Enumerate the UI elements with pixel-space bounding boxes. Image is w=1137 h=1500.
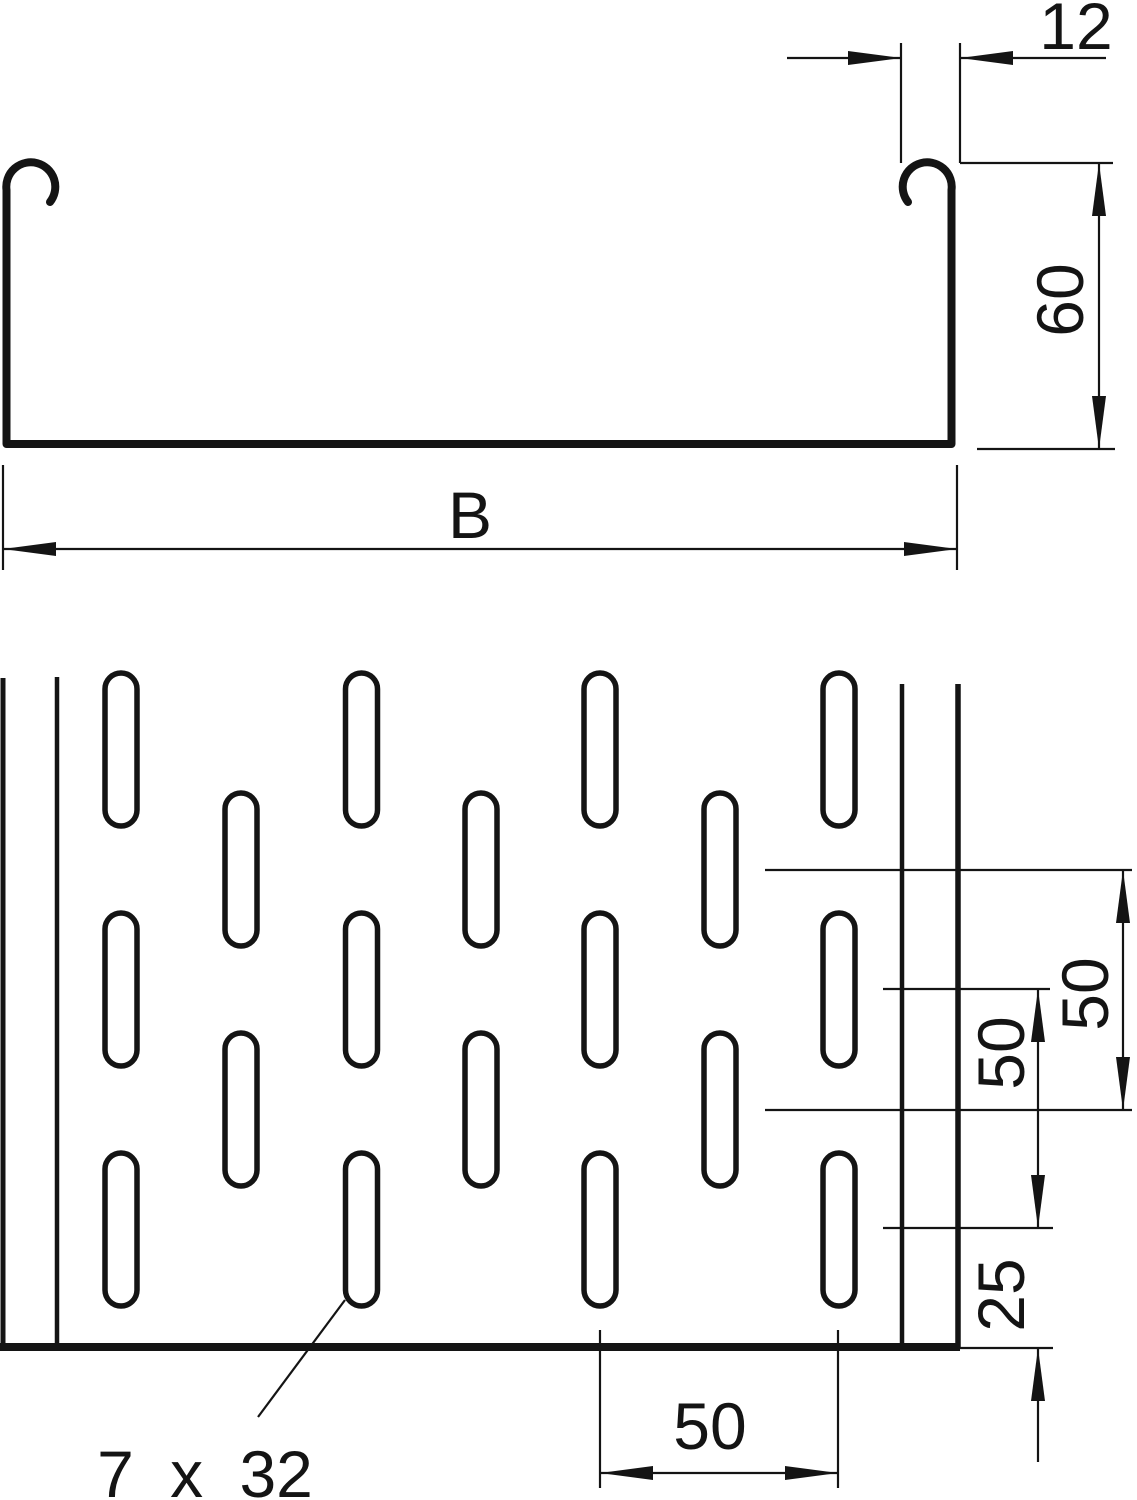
technical-drawing-canvas: 12 60 B — [0, 0, 1137, 1500]
arrowhead-right — [785, 1466, 838, 1480]
arrowhead-right — [904, 542, 957, 556]
slot — [105, 673, 137, 826]
dimension-label-60: 60 — [1023, 263, 1097, 336]
dimension-label-50-outer: 50 — [1048, 957, 1122, 1030]
dimension-50-bottom: 50 — [600, 1330, 838, 1488]
cross-section-view: 12 60 B — [3, 0, 1115, 570]
dimension-label-B: B — [448, 478, 492, 552]
arrowhead-up — [1031, 1348, 1045, 1401]
slot — [105, 1153, 137, 1306]
slot — [225, 793, 257, 946]
dimension-25: 25 — [960, 1258, 1053, 1462]
leader-line — [258, 1300, 345, 1417]
dimension-label-50-bottom: 50 — [673, 1389, 746, 1463]
slot — [225, 1033, 257, 1186]
tray-profile-outline — [6, 162, 951, 444]
slot — [823, 673, 855, 826]
arrowhead-left — [3, 542, 56, 556]
slot-size-label: 7 x 32 — [97, 1437, 313, 1500]
slot — [346, 1153, 378, 1306]
slot — [105, 913, 137, 1066]
slot-holes-offset-columns — [225, 793, 736, 1186]
arrowhead-up — [1092, 163, 1106, 216]
slot — [584, 673, 616, 826]
dimension-label-50-inner: 50 — [964, 1016, 1038, 1089]
dimension-label-12: 12 — [1039, 0, 1112, 63]
slot — [584, 913, 616, 1066]
arrowhead-down — [1031, 1175, 1045, 1228]
slot — [704, 793, 736, 946]
slot — [823, 913, 855, 1066]
arrowhead-down — [1116, 1057, 1130, 1110]
cable-tray-drawing: 12 60 B — [0, 0, 1137, 1500]
dimension-50-inner: 50 — [883, 989, 1053, 1228]
arrowhead-left — [960, 51, 1013, 65]
slot — [346, 913, 378, 1066]
slot-holes-main-columns — [105, 673, 855, 1306]
arrowhead-left — [600, 1466, 653, 1480]
slot — [704, 1033, 736, 1186]
slot — [823, 1153, 855, 1306]
dimension-label-25: 25 — [964, 1258, 1038, 1331]
arrowhead-up — [1116, 870, 1130, 923]
arrowhead-down — [1092, 396, 1106, 449]
dimension-B: B — [3, 465, 957, 570]
slot — [465, 1033, 497, 1186]
plan-view: 50 50 25 50 7 — [0, 673, 1132, 1500]
slot — [346, 673, 378, 826]
dimension-12: 12 — [787, 0, 1113, 163]
slot-size-callout: 7 x 32 — [97, 1300, 345, 1500]
dimension-60: 60 — [960, 163, 1115, 449]
arrowhead-right — [848, 51, 901, 65]
slot — [465, 793, 497, 946]
slot — [584, 1153, 616, 1306]
